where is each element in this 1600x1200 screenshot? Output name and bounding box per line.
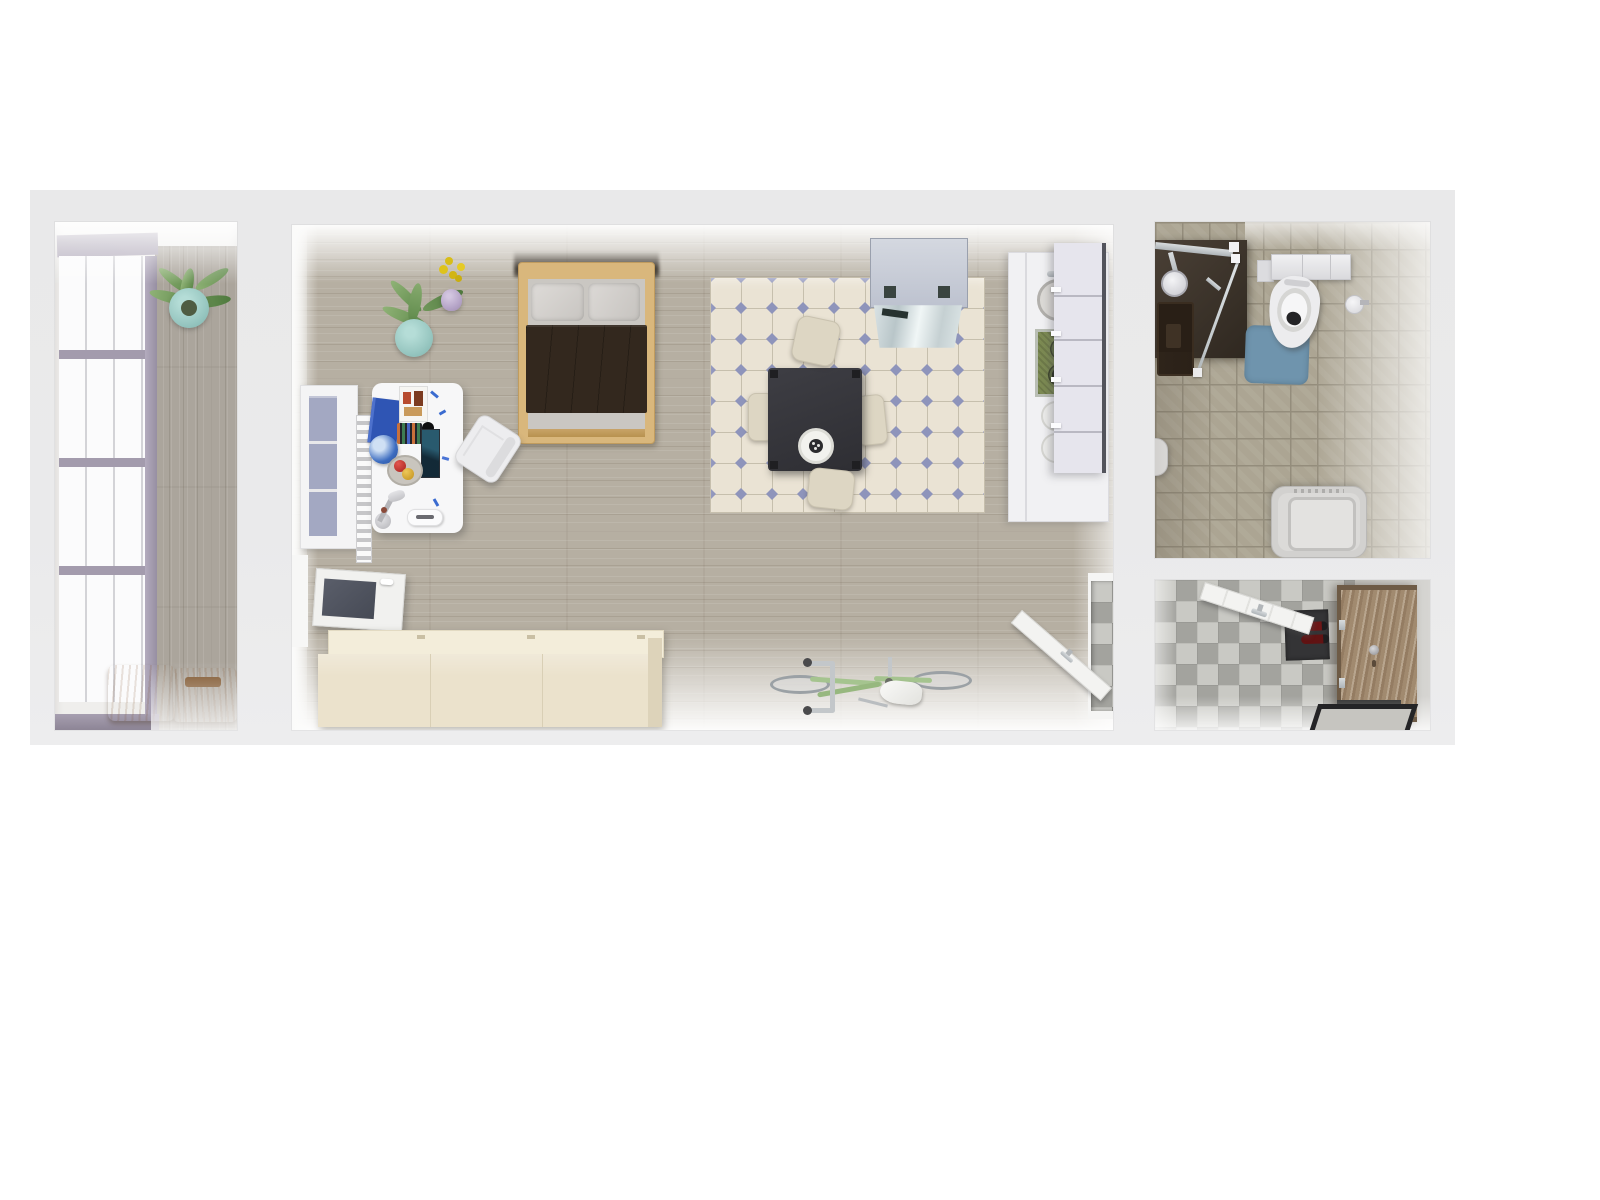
toilet [1267, 252, 1357, 352]
balcony-doorway [292, 555, 308, 647]
cistern-seam [1330, 255, 1331, 279]
sideboard-seam [430, 654, 431, 727]
wall-cabinets [1054, 243, 1106, 473]
bike-saddle [879, 679, 923, 706]
bin-vents [1294, 489, 1344, 493]
holder-bracket [1360, 300, 1369, 305]
magazine-image [403, 392, 411, 404]
floorplan-render [0, 0, 1600, 1200]
fruit-yellow [402, 468, 414, 480]
balcony-window-bar-3 [59, 566, 145, 575]
dining-chair-bottom [806, 467, 856, 512]
entry-door-keyhole [1372, 660, 1376, 667]
plant-leaf [406, 282, 425, 323]
red-shoe [1301, 634, 1329, 644]
plate-dot [812, 442, 815, 445]
desk-fruit-bowl [387, 455, 423, 486]
bathroom-glow-top [1245, 222, 1430, 252]
counter-edge-seam [1025, 253, 1027, 521]
bed-foot-rail [528, 429, 645, 437]
balcony-floor-glow-bottom [151, 662, 237, 730]
sideboard-side [648, 638, 662, 727]
table-leg [770, 370, 778, 378]
toilet-hinge [1284, 279, 1310, 288]
flower-yellow [457, 263, 465, 271]
tray-slot [416, 515, 434, 519]
bike-handlebar-stem [830, 661, 835, 713]
balcony-door-glass [322, 579, 376, 620]
plate-center [809, 439, 823, 453]
sideboard-front [318, 654, 654, 727]
flower-yellow [445, 257, 453, 265]
plate-dot [814, 447, 817, 450]
balcony-door-handle [380, 578, 393, 585]
room-bathroom [1155, 222, 1430, 558]
shower-head [1161, 270, 1188, 297]
range-hood [870, 238, 966, 350]
cabinet-handle [1051, 423, 1061, 428]
bike-grip [803, 706, 812, 715]
cabinet-seam [1054, 431, 1106, 433]
hood-vent-square [938, 286, 950, 298]
lamp-head [387, 489, 406, 504]
sideboard-notch [417, 635, 425, 639]
table-leg [852, 370, 860, 378]
cabinet-seam [1054, 295, 1106, 297]
cistern-seam [1302, 255, 1303, 279]
room-plant-group [387, 263, 482, 358]
sideboard-notch [527, 635, 535, 639]
desk-keyboard [397, 423, 422, 444]
shower-mixer-handle [1206, 277, 1222, 291]
room-main [292, 225, 1113, 730]
bathroom-ambient-shadow [1155, 352, 1215, 558]
laundry-bin [1271, 486, 1367, 558]
table-leg [770, 461, 778, 469]
desk-pen [430, 390, 439, 398]
bicycle [762, 653, 947, 728]
toilet-cistern [1271, 254, 1351, 280]
desk-pen [442, 456, 450, 461]
bed-pillow-left [531, 283, 584, 321]
plate-dot [817, 444, 820, 447]
balcony-window-bar-1 [59, 350, 145, 359]
desk-lamp [373, 489, 409, 531]
sideboard-seam [542, 654, 543, 727]
glass-clamp [1231, 254, 1240, 263]
office-window-frame [300, 385, 358, 549]
entry-door-hinge [1339, 678, 1345, 688]
hood-vent-square [884, 286, 896, 298]
sideboard [318, 630, 662, 727]
bed-pillow-right [588, 283, 640, 321]
cabinet-handle [1051, 331, 1061, 336]
plant-pot [395, 319, 433, 357]
shower-rail [1155, 242, 1233, 257]
cabinet-seam [1054, 339, 1106, 341]
shower-mat-emblem [1166, 324, 1181, 348]
double-bed [518, 262, 655, 444]
shower-rail-cap [1229, 242, 1239, 252]
bike-pedal [888, 657, 892, 677]
entry-door-hinge [1339, 620, 1345, 630]
desk-pen [433, 498, 440, 506]
magazine-image [414, 391, 423, 406]
plate [798, 428, 834, 464]
desk-magazine [399, 386, 428, 422]
cabinet-side-edge [1102, 243, 1106, 473]
room-balcony [55, 222, 237, 730]
bed-blanket [526, 325, 647, 413]
balcony-wall-glow-top [55, 222, 237, 284]
desk-pen [439, 409, 447, 415]
flower-yellow [439, 265, 448, 274]
dining-table [768, 368, 862, 471]
flower-yellow [455, 275, 462, 282]
cabinet-seam [1054, 385, 1106, 387]
lamp-joint [381, 507, 387, 513]
plant-soil [181, 300, 197, 316]
office-window-glass [309, 396, 337, 536]
entry-door-handle [1369, 645, 1379, 655]
balcony-door-open [312, 568, 406, 632]
balcony-window-glass [59, 256, 145, 702]
hallway-glow-left [1155, 580, 1177, 730]
framed-floor-mat [1308, 704, 1418, 730]
sideboard-notch [637, 635, 645, 639]
cabinet-handle [1051, 377, 1061, 382]
bike-grip [803, 658, 812, 667]
desk-monitor [421, 429, 440, 478]
toilet-paper-holder [1345, 290, 1369, 318]
cabinet-handle [1051, 287, 1061, 292]
desk-tray [407, 509, 443, 526]
flower-vase [441, 289, 462, 311]
toilet-bowl [1265, 274, 1322, 351]
room-hallway [1155, 580, 1430, 730]
balcony-window-bar-2 [59, 458, 145, 467]
magazine-image [404, 407, 422, 416]
table-leg [852, 461, 860, 469]
bin-lid [1288, 497, 1356, 551]
desk [372, 383, 463, 533]
